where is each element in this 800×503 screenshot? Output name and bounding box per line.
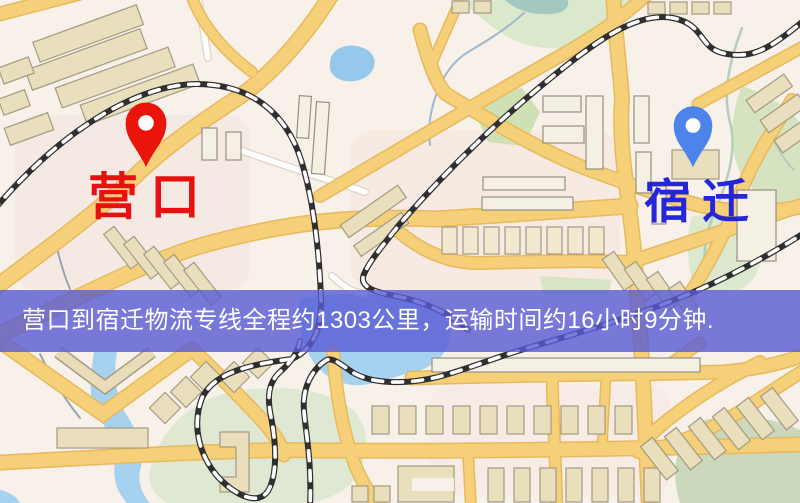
map-canvas[interactable]: 营口 宿迁 营口到宿迁物流专线全程约1303公里，运输时间约16小时9分钟. [0, 0, 800, 503]
destination-pin-icon[interactable] [668, 105, 718, 169]
destination-label: 宿迁 [644, 178, 760, 225]
route-info-text: 营口到宿迁物流专线全程约1303公里，运输时间约16小时9分钟. [22, 307, 714, 334]
origin-pin-icon[interactable] [120, 101, 172, 169]
building-notch [412, 478, 454, 491]
route-info-banner: 营口到宿迁物流专线全程约1303公里，运输时间约16小时9分钟. [0, 290, 800, 352]
destination-pin-body [674, 106, 713, 167]
origin-pin-hole [138, 115, 154, 131]
origin-label: 营口 [88, 172, 212, 222]
destination-pin-hole [686, 118, 701, 133]
origin-pin-body [126, 102, 167, 167]
map-background [0, 0, 800, 503]
